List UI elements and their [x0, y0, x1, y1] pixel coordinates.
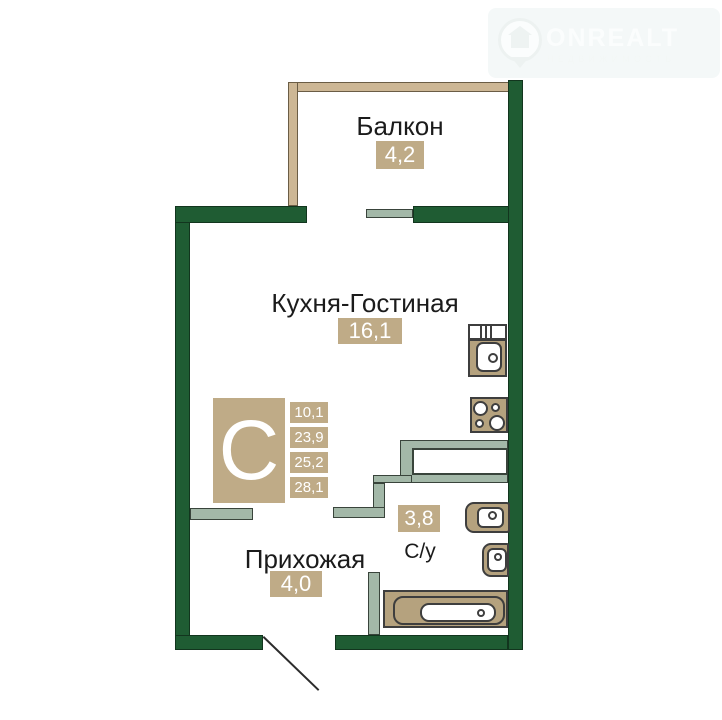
entrance-door-swing: [263, 636, 320, 691]
apartment-type-badge: С: [213, 398, 285, 503]
bathroom-top-wall: [373, 475, 412, 483]
area-option-badge: 25,2: [290, 452, 328, 473]
logo-tagline-text: НЕДВИЖИМОСТЬ: [547, 54, 675, 64]
kitchen-counter-icon: [468, 324, 507, 340]
bathroom-corner-wall: [333, 507, 385, 518]
stove-burner: [491, 403, 500, 412]
stove-burner: [489, 415, 505, 431]
stove-burner: [475, 419, 484, 428]
top-wall-right: [413, 206, 511, 223]
balcony-top-wall: [288, 82, 511, 92]
bathroom-label: С/у: [398, 540, 442, 564]
right-wall: [508, 80, 523, 650]
stove-burner: [473, 401, 488, 416]
niche-opening: [412, 448, 508, 475]
washbasin-drain: [494, 553, 502, 561]
balcony-door-sill: [366, 209, 413, 218]
area-option-badge: 10,1: [290, 402, 328, 423]
bottom-wall-right: [335, 635, 508, 650]
area-option-badge: 23,9: [290, 427, 328, 448]
balcony-left-wall: [288, 82, 298, 206]
kitchen-sink-drain: [488, 353, 498, 363]
onrealt-logo: ONREALT НЕДВИЖИМОСТЬ: [488, 8, 720, 78]
hallway-area-badge: 4,0: [270, 571, 322, 597]
kitchen-living-area-badge: 16,1: [338, 318, 402, 344]
hallway-divider-wall: [190, 508, 253, 520]
floor-plan: ONREALT НЕДВИЖИМОСТЬ: [0, 0, 722, 720]
balcony-label: Балкон: [330, 111, 470, 142]
kitchen-living-label: Кухня-Гостиная: [265, 288, 465, 319]
bathtub-drain: [477, 609, 485, 617]
toilet-drain: [488, 511, 497, 520]
area-option-badge: 28,1: [290, 477, 328, 498]
logo-house-icon: [511, 35, 529, 48]
bottom-wall-left: [175, 635, 263, 650]
bathroom-area-badge: 3,8: [398, 505, 440, 532]
logo-pin-icon: [498, 18, 542, 62]
left-wall: [175, 206, 190, 650]
balcony-area-badge: 4,2: [376, 141, 424, 169]
bathroom-left-wall-lower: [368, 572, 380, 635]
top-wall-left: [175, 206, 307, 223]
logo-brand-text: ONREALT: [546, 24, 679, 53]
